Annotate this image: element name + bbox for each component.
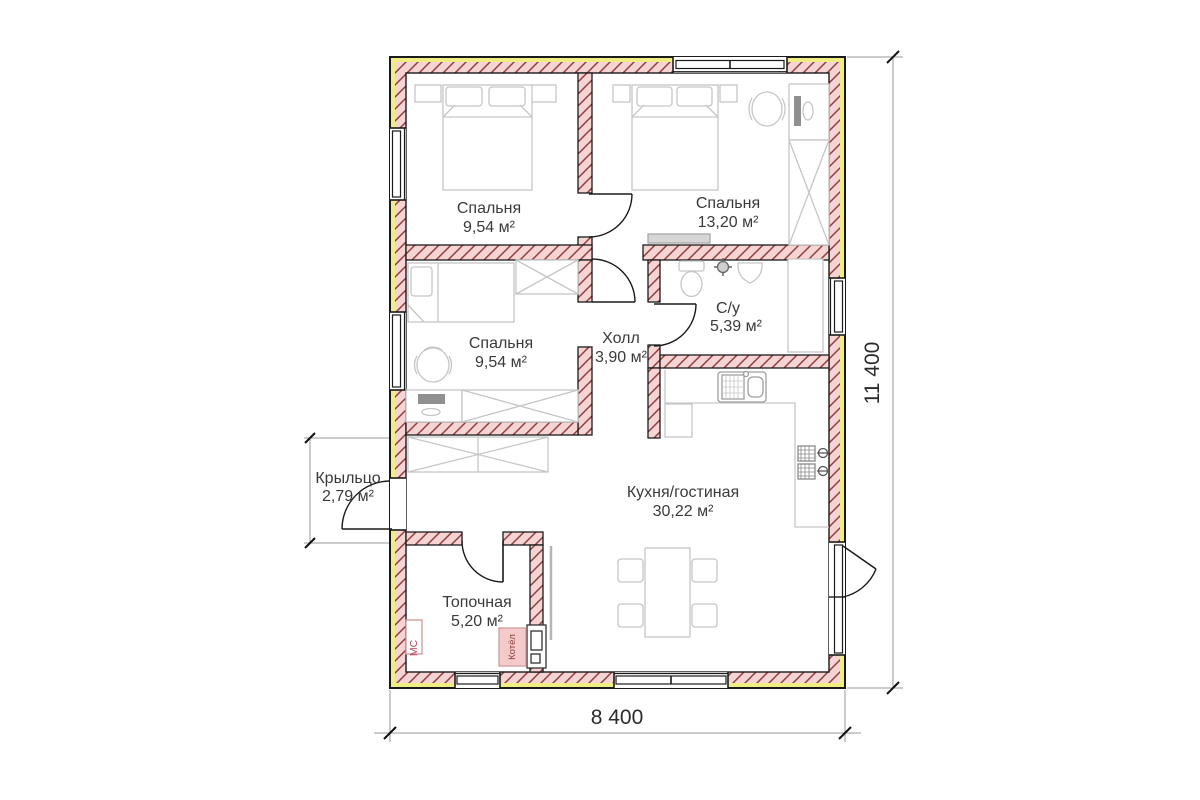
door-boiler-room xyxy=(462,541,503,582)
desk-icon xyxy=(789,84,829,140)
pillow-icon xyxy=(446,87,482,106)
room-name-bathroom: С/у xyxy=(716,300,740,317)
room-area-porch: 2,79 м² xyxy=(322,488,375,505)
fridge-icon xyxy=(665,404,692,437)
nightstand-icon xyxy=(720,85,737,102)
window-bottom-2 xyxy=(614,672,728,688)
wardrobe-icon xyxy=(789,140,829,245)
single-bed-icon xyxy=(408,263,514,322)
room-area-kitchen-living: 30,22 м² xyxy=(653,503,714,520)
room-name-bedroom-middle: Спальня xyxy=(469,335,533,352)
wardrobe-icon xyxy=(462,390,578,422)
chair-icon xyxy=(618,559,643,582)
monitor-icon xyxy=(418,394,445,404)
room-area-bedroom-middle: 9,54 м² xyxy=(475,354,528,371)
room-name-hall: Холл xyxy=(602,330,640,347)
ceiling-light-icon xyxy=(714,258,732,276)
armchair-icon xyxy=(415,347,452,382)
window-left-2 xyxy=(390,312,406,390)
entrance-opening xyxy=(390,478,406,530)
office-chair-icon xyxy=(749,92,785,126)
pillow-icon xyxy=(411,267,432,296)
monitor-icon xyxy=(794,96,801,126)
furniture xyxy=(406,84,829,668)
shower-icon xyxy=(788,259,823,352)
window-left-1 xyxy=(390,128,406,200)
door-bedroom-middle xyxy=(592,259,635,302)
window-top xyxy=(673,57,787,73)
chair-icon xyxy=(692,604,717,627)
nightstand-icon xyxy=(613,85,630,102)
room-area-bathroom: 5,39 м² xyxy=(710,318,763,335)
double-bed-icon xyxy=(613,85,737,190)
room-area-bedroom-top-right: 13,20 м² xyxy=(698,214,759,231)
room-name-boiler-room: Топочная xyxy=(442,594,511,611)
pillow-icon xyxy=(489,87,525,106)
boiler-icon xyxy=(527,625,546,668)
room-name-bedroom-top-right: Спальня xyxy=(696,195,760,212)
meter-cabinet-label: МС xyxy=(408,639,420,656)
room-name-porch: Крыльцо xyxy=(315,470,380,487)
tv-stand-icon xyxy=(648,234,710,243)
dining-table-icon xyxy=(618,548,717,637)
dimension-height: 11 400 xyxy=(861,342,884,405)
room-name-kitchen-living: Кухня/гостиная xyxy=(627,484,739,501)
window-bottom-1 xyxy=(455,672,500,688)
floor-plan: 8 400 11 400 xyxy=(0,0,1200,800)
pillow-icon xyxy=(677,87,712,106)
double-bed-icon xyxy=(415,85,556,190)
room-area-boiler-room: 5,20 м² xyxy=(451,613,504,630)
kitchen-sink-icon xyxy=(718,372,766,403)
wardrobe-icon xyxy=(408,437,548,472)
door-window-right xyxy=(829,542,876,655)
wardrobe-icon xyxy=(516,260,578,294)
desk-icon xyxy=(406,390,462,422)
toilet-icon xyxy=(679,261,704,297)
washbasin-icon xyxy=(738,263,762,283)
pillow-icon xyxy=(637,87,672,106)
window-right-1 xyxy=(829,278,845,335)
dimension-width: 8 400 xyxy=(591,706,644,729)
nightstand-icon xyxy=(530,85,556,102)
room-name-bedroom-top-left: Спальня xyxy=(457,200,521,217)
door-bedroom-top xyxy=(589,194,632,237)
chair-icon xyxy=(692,559,717,582)
room-area-bedroom-top-left: 9,54 м² xyxy=(463,219,516,236)
stove-icon xyxy=(798,446,829,479)
door-bathroom xyxy=(654,304,696,346)
room-area-hall: 3,90 м² xyxy=(595,349,648,366)
floor-plan-page: 8 400 11 400 xyxy=(0,0,1200,800)
boiler-label: Котёл xyxy=(507,634,518,660)
chair-icon xyxy=(618,604,643,627)
nightstand-icon xyxy=(415,85,441,102)
